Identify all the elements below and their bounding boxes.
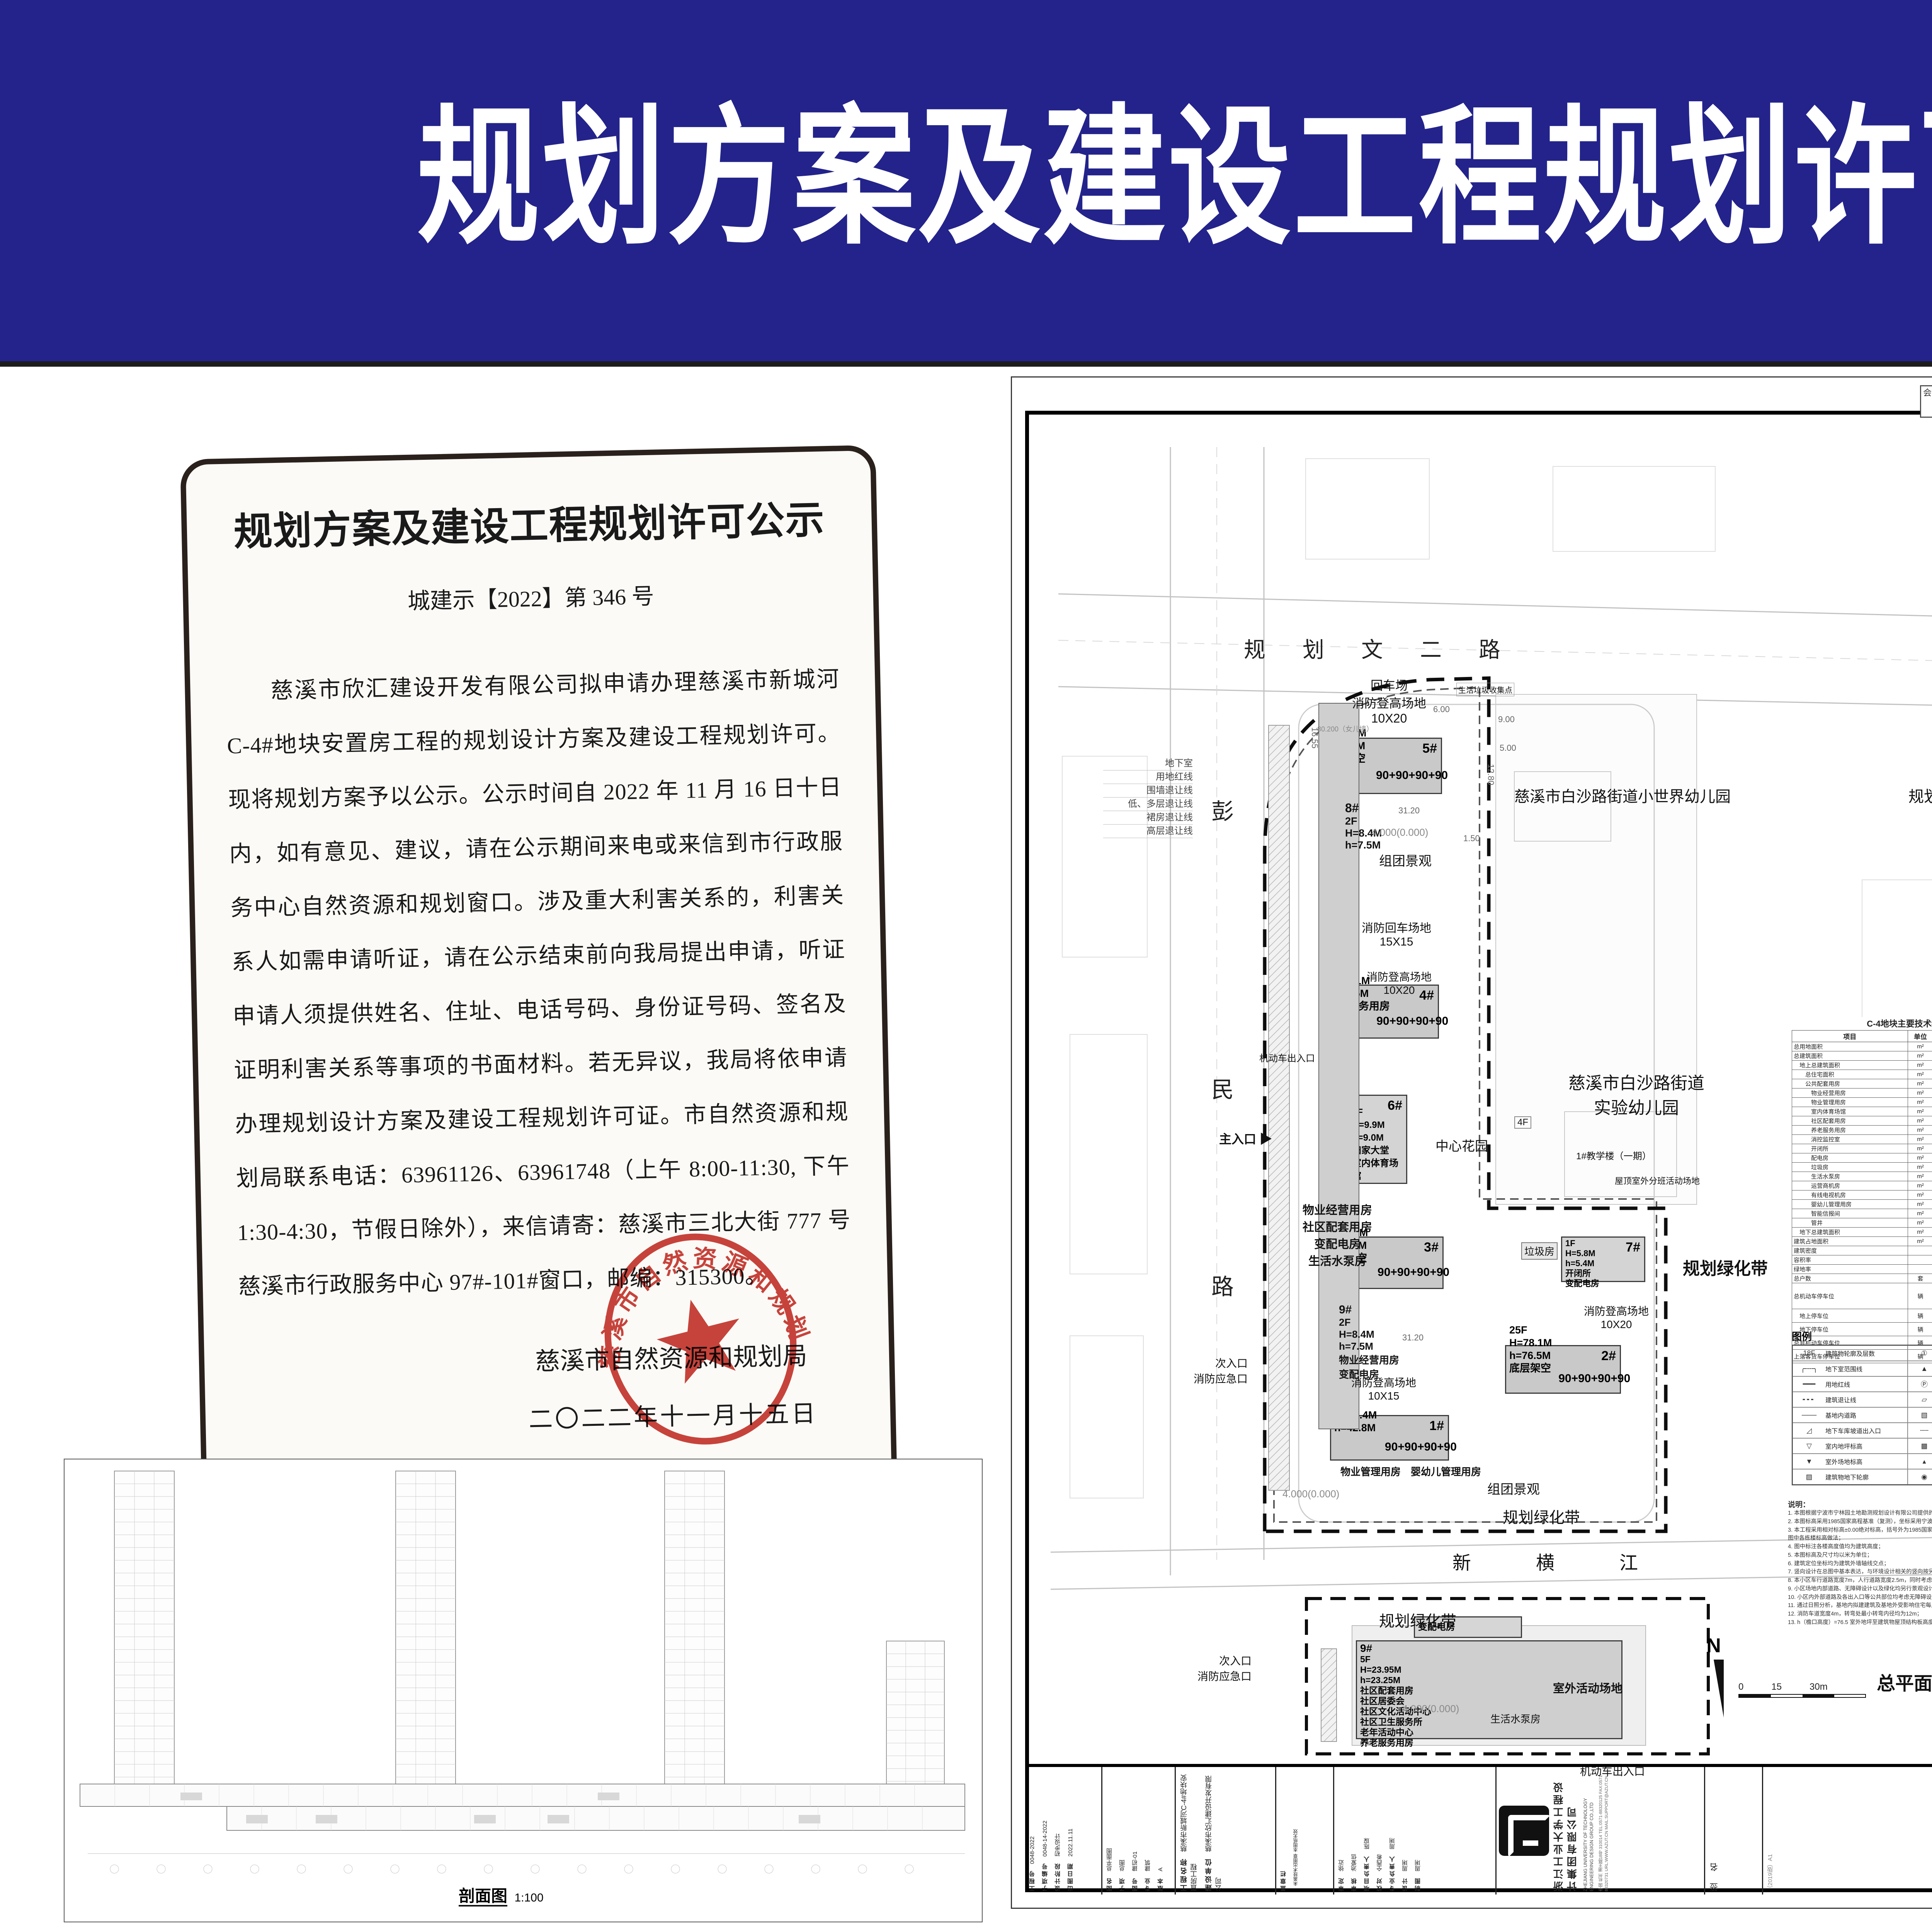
letter-heading: 规划方案及建设工程规划许可公示 [222, 488, 837, 557]
cluster-landscape-label-1: 组团景观 [1379, 850, 1432, 869]
dim-5-00: 5.00 [1500, 743, 1516, 753]
tech-col-unit: 单位 [1908, 1031, 1932, 1042]
legend-item: ▴ 住宅出入口 [1908, 1454, 1932, 1469]
elev-tag-1: 4.000(0.000) [1371, 827, 1428, 838]
signature-field: 校对仝西希 [1376, 1770, 1384, 1891]
tb-project-ids: 工程号0048-2022 子项编号0048-14-2022 设计阶段初步设计 出… [1025, 1767, 1102, 1895]
tech-table-row: 生活水泵房m²126.44 [1792, 1172, 1932, 1181]
note-line: 3. 本工程采用相对标高±0.00绝对标高，括号外为1985国家高程基准（复测）… [1788, 1526, 1932, 1543]
parapet-tag: 80.200（女儿墙） [1317, 724, 1373, 734]
notes-title: 说明： [1788, 1499, 1932, 1509]
tech-table-row: 物业经营用房m²580.40地上总建筑面积10‰ [1792, 1088, 1932, 1098]
scale-bar: 0 15 30m [1738, 1679, 1866, 1698]
tb-drawing-ids: 图名总平面图 子项总图 图号建初-01 专业建筑 版本A [1102, 1767, 1176, 1895]
building-2: 2# 25F H=78.1M h=76.5M 底层架空 90+90+90+90 [1505, 1345, 1621, 1394]
signature-field: 审核池爱信 [1350, 1770, 1358, 1891]
tech-table-row: 地下总建筑面积m²25495.26 [1792, 1228, 1932, 1237]
signature-field: 项目负责人陈琛 [1363, 1770, 1371, 1891]
tech-table-row: 运营商机房m²75.24 [1792, 1181, 1932, 1190]
legend-symbol: ▽ [1793, 1442, 1825, 1450]
tech-table-row: 绿地率35%≥35% [1792, 1265, 1932, 1274]
legend-item: ╭╌╌╮ 地下室范围线 [1793, 1361, 1908, 1376]
tech-table-row: 社区配套用房m²539.3980m²/百户 [1792, 1116, 1932, 1126]
note-line: 11. 通过日照分析，基地内拟建建筑及基地外受影响住宅每户均满足《城市建筑工程日… [1788, 1602, 1932, 1610]
tb-project-name: 工程名称慈溪市新城河C-4#地块安置房工程 建设单位慈溪市欣汇建设开发有限公司 [1176, 1767, 1276, 1895]
vehicle-exit-label: 机动车出入口 [1259, 1051, 1315, 1064]
tech-table-row: 管井m²793.93 [1792, 1218, 1932, 1228]
design-institute-logo [1499, 1806, 1549, 1856]
plan-caption: 总平面图1:500 [1877, 1668, 1932, 1695]
setback-label: 围墙退让线 [1103, 784, 1193, 798]
kindergarten-floor-tag: 4F [1514, 1116, 1531, 1129]
elev-tag-2: 4.000(0.000) [1282, 1488, 1339, 1500]
fire-lift-label-2: 消防登高场地 10X20 [1584, 1303, 1649, 1331]
signature-field: 专业负责人周琍 [1388, 1770, 1396, 1891]
section-drawing [65, 1459, 982, 1922]
garbage-room-label: 垃圾房 [1521, 1242, 1558, 1260]
note-line: 6. 建筑定位坐标均为建筑外墙轴线交点； [1788, 1560, 1932, 1568]
design-institute-name-en: ZHEJIANG UNIVERSITY OF TECHNOLOGY ENGINE… [1582, 1770, 1595, 1891]
legend-item: ╸╸╸ 建筑退让线 [1793, 1392, 1908, 1407]
note-line: 8. 本小区车行道路宽度7m，人行道路宽度2.5m，同时考虑消防车道、消防操作面… [1788, 1577, 1932, 1585]
dim-16-55: 16.55 [1310, 727, 1320, 748]
tech-table-row: 建筑占地面积m²3712.76 [1792, 1237, 1932, 1246]
building-9a-label: 9#2F H=8.4M h=7.5M 物业经营用房 变配电房 [1339, 1303, 1399, 1381]
site-plan-sheet: 会签 [1011, 376, 1932, 1909]
legend-symbol: Ⓟ [1908, 1379, 1932, 1389]
legend-symbol: ◿ [1793, 1427, 1825, 1435]
green-belt-label-1: 规划绿化带 [1683, 1255, 1768, 1279]
section-caption: 剖面图 1:100 [459, 1883, 544, 1906]
setback-label: 高层退让线 [1103, 825, 1193, 838]
tech-table-row: 总建筑面积m²68954.34 [1792, 1051, 1932, 1061]
road-label-north: 规划文二路 [1244, 633, 1537, 664]
setback-leader-labels: 地下室用地红线围墙退让线低、多层退让线裙房退让线高层退让线 [1103, 757, 1193, 838]
notice-letter: 规划方案及建设工程规划许可公示 城建示【2022】第 346 号 慈溪市欣汇建设… [180, 445, 898, 1535]
road-label-west-1: 彭 [1211, 793, 1234, 826]
building-8-label: 8#2F H=8.4M h=7.5M [1345, 801, 1382, 851]
cluster-landscape-label-2: 组团景观 [1487, 1479, 1540, 1498]
tech-table-row: 总机动车停车位辆475住宅:机动车1车位/100平方米; 商业:机动车1.2车位… [1792, 1283, 1932, 1309]
legend-item: ① 地面机动车位数量 [1908, 1345, 1932, 1361]
sub-entry-label-1: 次入口 消防应急口 [1194, 1355, 1248, 1386]
legend-symbol: 18F [1793, 1349, 1825, 1357]
teaching-bldg-label: 1#教学楼（一期） [1576, 1148, 1651, 1162]
banner-title: 规划方案及建设工程规划许可公示 [0, 0, 1932, 273]
river-label: 新 横 江 [1452, 1548, 1661, 1575]
note-line: 12. 消防车道宽度4m，转弯处最小转弯内径均为12m； [1788, 1610, 1932, 1619]
road-label-west-3: 路 [1211, 1269, 1234, 1301]
banner: 规划方案及建设工程规划许可公示 [0, 0, 1932, 361]
plan-legend: 图例 18F 建筑物轮廓及层数 ╭╌╌╮ 地下室范围线 ━━━ 用地红线 ╸╸╸… [1792, 1329, 1932, 1485]
note-line: 2. 本图标高采用1985国家高程基准（复测），坐标采用宁波市独立坐标系； [1788, 1518, 1932, 1526]
legend-item: ▩ 消防登高场地 [1908, 1438, 1932, 1454]
legend-symbol: ▱ [1908, 1396, 1932, 1404]
north-arrow: N [1690, 1634, 1737, 1727]
scale-ticks: 0 15 30m [1738, 1679, 1866, 1692]
design-institute-address: 中国 杭州 潮王路18号 310014 TEL:0571-88320125 FA… [1598, 1770, 1610, 1891]
tb-signatures: 审定徐近审核池爱信项目负责人陈琛校对仝西希专业负责人周琍设计周琍制图周琍 [1334, 1767, 1497, 1895]
setback-label: 裙房退让线 [1103, 811, 1193, 825]
tech-table-row: 公共配套用房m²4090.82 [1792, 1079, 1932, 1088]
tech-table-row: 建筑密度20.59%≤22% [1792, 1246, 1932, 1255]
legend-item: ▧ 地面无障碍停车位 [1908, 1407, 1932, 1423]
tech-table-row: 容积率2.391.2-3.0 [1792, 1255, 1932, 1265]
setback-label: 用地红线 [1103, 770, 1193, 784]
green-belt-label-3: 规划绿化带 [1379, 1609, 1456, 1631]
tech-table-row: 开闭所m²84.63 [1792, 1144, 1932, 1153]
dim-9-00: 9.00 [1498, 714, 1515, 724]
sub-entry-label-2: 次入口 消防应急口 [1197, 1653, 1252, 1684]
tech-indicator-table: C-4地块主要技术经济指标 项目 单位 数量 规划指标 总用地面积m²18204… [1792, 1017, 1932, 1363]
plan-notes: 说明： 1. 本图根据宁波市宁林园土地勘测规划设计有限公司提供的用地红线图绘制；… [1788, 1499, 1932, 1627]
tech-table-row: 地上停车位辆35社会停车位, 其中无障碍车位2辆, 快充3个, 慢充2个 [1792, 1309, 1932, 1323]
dim-6-00: 6.00 [1433, 704, 1450, 714]
building-7: 7# 1F H=5.8M h=5.4M 开闭所 变配电房 [1561, 1236, 1645, 1282]
north-letter: N [1690, 1634, 1737, 1657]
legend-symbol: ─── [1793, 1411, 1825, 1419]
legend-symbol: ▲ [1908, 1365, 1932, 1373]
road-label-west-2: 民 [1211, 1071, 1234, 1104]
kindergarten2-label: 慈溪市白沙路街道 实验幼儿园 [1568, 1069, 1704, 1119]
note-line: 9. 小区场地内部道路、无障碍设计以及绿化均另行景观设计； [1788, 1585, 1932, 1594]
signature-field: 设计周琍 [1401, 1770, 1409, 1891]
tech-table-row: 地上总建筑面积m²43459.08 [1792, 1061, 1932, 1070]
tb-version: （2019版）A1 [1763, 1767, 1932, 1895]
tech-table-row: 有线电视机房m²33.13 [1792, 1190, 1932, 1200]
legend-item: ▽ 室内地坪标高 [1793, 1438, 1908, 1454]
tech-col-item: 项目 [1792, 1031, 1908, 1042]
legend-symbol: ① [1908, 1349, 1932, 1357]
green-belt-label-2: 规划绿化带 [1503, 1505, 1580, 1527]
note-line: 5. 本图标高及尺寸均以米为单位； [1788, 1551, 1932, 1560]
legend-item: ◉ 生活垃圾收集点 [1908, 1469, 1932, 1485]
tb-sign-label: 签名 [1705, 1767, 1763, 1895]
tech-table-row: 总住宅面积m²39368.26 [1792, 1070, 1932, 1079]
legend-item: ▱ 地面停车位 [1908, 1392, 1932, 1407]
legend-symbol: ▧ [1908, 1411, 1932, 1419]
note-line: 13. h（檐口高度）=76.5 室外地坪至建筑物屋顶结构板高度 H（建筑高度）… [1788, 1619, 1932, 1627]
compass-needle [1704, 1660, 1724, 1718]
legend-item: ─── 基地内道路 [1793, 1407, 1908, 1423]
tech-table-row: 婴幼儿管理用房m²206.6 [1792, 1200, 1932, 1209]
fire-turnaround-label: 消防回车场地 15X15 [1362, 918, 1431, 949]
tech-table-row: 物业管理用房m²195.10地上总建筑面积3‰ [1792, 1098, 1932, 1107]
tech-table-row: 配电房m²449.01 [1792, 1153, 1932, 1163]
turnaround-label: 回车场 消防登高场地 10X20 [1352, 676, 1426, 726]
outdoor-field-label: 室外活动场地 [1553, 1679, 1622, 1696]
scale-bar-graphic [1738, 1694, 1866, 1698]
fire-lift-label-1: 消防登高场地 10X20 [1367, 969, 1432, 997]
section-drawing-panel: 剖面图 1:100 [64, 1459, 983, 1922]
tech-table-title: C-4地块主要技术经济指标 [1792, 1017, 1932, 1029]
legend-symbol: ◉ [1908, 1473, 1932, 1481]
legend-item: ▲ 基地出入口 [1908, 1361, 1932, 1376]
poster: 规划方案及建设工程规划许可公示 规划方案及建设工程规划许可公示 城建示【2022… [0, 0, 1932, 1932]
setback-label: 地下室 [1103, 757, 1193, 770]
legend-symbol: ━━━ [1793, 1380, 1825, 1388]
legend-item: ━━━ 用地红线 [1793, 1376, 1908, 1392]
tower1-uses-label: 物业管理用房 婴幼儿管理用房 [1340, 1464, 1481, 1478]
tech-table-row: 室内体育场馆m²655.30不小于350方 [1792, 1107, 1932, 1116]
legend-symbol: ┄┄ [1908, 1427, 1932, 1435]
design-institute-name: 浙江工业大学工程设计集团有限公司 [1552, 1770, 1579, 1891]
signature-field: 审定徐近 [1337, 1770, 1345, 1891]
waste-point-label: 生活垃圾收集点 [1456, 683, 1514, 696]
tech-table-row: 养老服务用房m²113.58每百户20m² [1792, 1126, 1932, 1135]
legend-symbol: ▼ [1793, 1458, 1825, 1466]
legend-item: ▨ 建筑物地下轮廓 [1793, 1469, 1908, 1485]
legend-item: ┄┄ 围墙 [1908, 1423, 1932, 1438]
main-entry-label: 主入口 ▶ [1219, 1129, 1272, 1147]
legend-symbol: ╭╌╌╮ [1793, 1365, 1825, 1373]
elev-tag-3: 4.000(0.000) [1402, 1703, 1459, 1715]
note-line: 10. 小区内外部道路及各出入口等公共部位均考虑无障碍设计； [1788, 1594, 1932, 1602]
setback-label: 低、多层退让线 [1103, 798, 1193, 811]
legend-item: ▼ 室外场地标高 [1793, 1454, 1908, 1469]
note-line: 4. 图中标注各楼高度值均为建筑高度； [1788, 1543, 1932, 1551]
note-line: 1. 本图根据宁波市宁林园土地勘测规划设计有限公司提供的用地红线图绘制； [1788, 1509, 1932, 1518]
dim-1-50: 1.50 [1463, 833, 1480, 844]
signature-field: 制图周琍 [1414, 1770, 1422, 1891]
pump-room-label: 生活水泵房 [1490, 1711, 1541, 1726]
fire-lift-label-3: 消防登高场地 10X15 [1351, 1374, 1416, 1402]
tech-table-row: 智能信报间m²64.5 [1792, 1209, 1932, 1218]
tech-table-row: 总户数套432 [1792, 1274, 1932, 1283]
letter-doc-number: 城建示【2022】第 346 号 [224, 574, 838, 619]
tb-company: 浙江工业大学工程设计集团有限公司 ZHEJIANG UNIVERSITY OF … [1497, 1767, 1705, 1895]
legend-title: 图例 [1792, 1329, 1932, 1343]
legend-symbol: ▴ [1908, 1458, 1932, 1466]
note-line: 7. 竖向设计在总图中基本表达，与环境设计相关的竖向按另行环境设计图为准； [1788, 1568, 1932, 1577]
legend-item: Ⓟ 车库出入口 [1908, 1376, 1932, 1392]
dim-31-20-a: 31.20 [1398, 806, 1420, 816]
legend-symbol: ╸╸╸ [1793, 1396, 1825, 1404]
legend-item: 18F 建筑物轮廓及层数 [1793, 1345, 1908, 1361]
legend-item: ◿ 地下车库坡道出入口 [1793, 1423, 1908, 1438]
podium-uses-label: 物业经营用房 社区配套用房 变配电房 生活水泵房 [1303, 1201, 1372, 1269]
dim-12-80: 12.80 [1486, 764, 1496, 785]
tech-table-row: 垃圾房m²60.10 [1792, 1163, 1932, 1172]
legend-symbol: ▨ [1793, 1473, 1825, 1481]
kindergarten1-label: 慈溪市白沙路街道小世界幼儿园 [1514, 784, 1731, 806]
tech-table-row: 消控监控室m²113.47 [1792, 1135, 1932, 1144]
legend-symbol: ▩ [1908, 1442, 1932, 1450]
roof-play-label: 屋顶室外分班活动场地 [1615, 1174, 1700, 1187]
banner-underline [0, 361, 1932, 367]
tb-stamp: 盖章栏 未盖技术出图章 本图纸无效 [1276, 1767, 1334, 1895]
center-garden-label: 中心花园 [1435, 1136, 1488, 1155]
tech-table-row: 总用地面积m²18204 [1792, 1042, 1932, 1051]
dim-31-20-b: 31.20 [1402, 1333, 1423, 1343]
reserved-land-label: 规划留地 [1908, 784, 1932, 806]
plan-title-block: 工程号0048-2022 子项编号0048-14-2022 设计阶段初步设计 出… [1025, 1764, 1932, 1895]
